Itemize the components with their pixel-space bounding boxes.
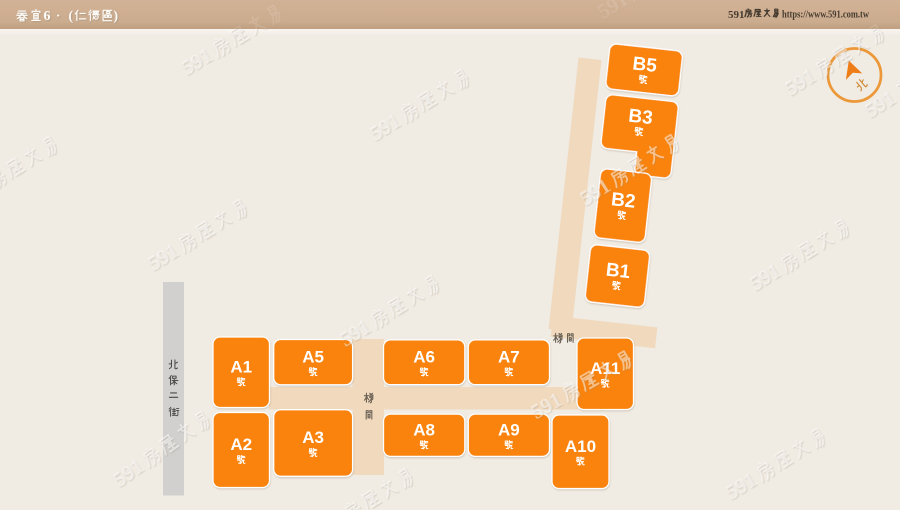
svg-text:A7: A7 <box>498 347 520 366</box>
svg-text:6: 6 <box>44 9 51 24</box>
svg-text:B5: B5 <box>631 53 658 77</box>
svg-text:https://www.591.com.tw: https://www.591.com.tw <box>782 10 869 21</box>
svg-text:A8: A8 <box>413 420 435 439</box>
svg-text:A3: A3 <box>302 428 324 447</box>
svg-text:(: ( <box>69 8 74 23</box>
svg-text:·: · <box>56 8 60 23</box>
svg-text:A6: A6 <box>413 347 435 366</box>
svg-text:B1: B1 <box>605 260 632 284</box>
svg-text:A1: A1 <box>230 357 252 376</box>
svg-text:A5: A5 <box>302 347 324 366</box>
svg-text:): ) <box>114 8 119 23</box>
svg-text:A2: A2 <box>230 435 252 454</box>
svg-text:591: 591 <box>728 9 745 21</box>
svg-text:A10: A10 <box>565 437 596 456</box>
svg-text:A9: A9 <box>498 420 520 439</box>
svg-text:B3: B3 <box>627 106 653 130</box>
